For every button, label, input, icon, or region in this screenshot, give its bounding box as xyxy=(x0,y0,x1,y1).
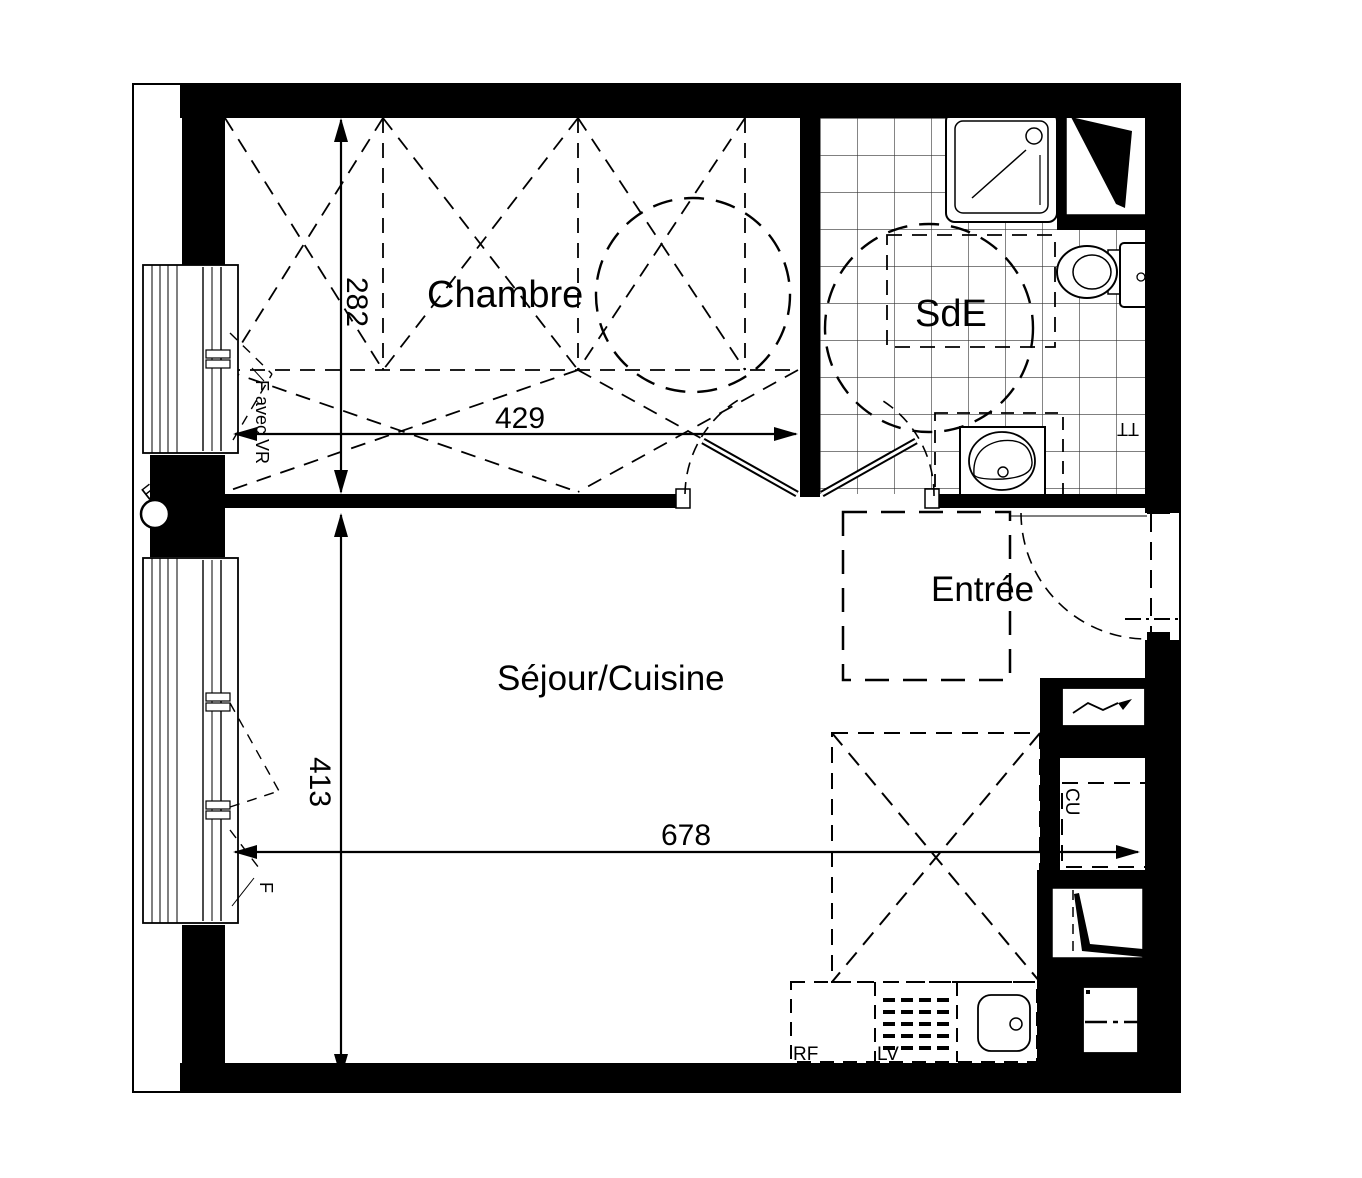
dim-413-label: 413 xyxy=(303,757,336,807)
kitchen-counter xyxy=(791,982,1037,1062)
towel-dryer-label: TT xyxy=(1117,419,1139,439)
chambre-turning-circle xyxy=(596,198,790,392)
wall-left-top xyxy=(182,85,225,265)
wall-bottom xyxy=(180,1063,1057,1092)
insulation-band-h xyxy=(1056,958,1148,977)
sde-label: SdE xyxy=(915,293,987,335)
wall-chambre-sejour xyxy=(225,494,690,508)
chambre-label: Chambre xyxy=(427,274,583,316)
wall-right-upper xyxy=(1145,85,1180,513)
dim-429-label: 429 xyxy=(495,402,545,435)
dim-678-label: 678 xyxy=(661,819,711,852)
dim-282-label: 282 xyxy=(340,277,373,327)
wall-chambre-sde xyxy=(800,112,820,497)
entry-door xyxy=(1010,504,1182,642)
kitchen-sink xyxy=(978,995,1030,1051)
wall-top xyxy=(180,85,1180,118)
washbasin xyxy=(960,427,1045,497)
floor-plan-canvas: Chambre SdE Entrée Séjour/Cuisine 282 42… xyxy=(0,0,1362,1178)
kitchen-column-label: CU xyxy=(1061,788,1082,815)
shower-tray xyxy=(946,112,1057,222)
rainwater-pipe-symbol xyxy=(141,500,169,528)
chambre-door xyxy=(685,399,797,494)
electrical-panel xyxy=(1062,688,1145,726)
sejour-window xyxy=(143,558,279,923)
window-handle xyxy=(206,693,230,701)
insulation-band-v xyxy=(1056,977,1075,1061)
window-handle xyxy=(206,350,230,358)
water-heater xyxy=(1083,987,1138,1053)
wall-sde-entree xyxy=(933,494,1147,508)
entree-label: Entrée xyxy=(931,570,1034,609)
sejour-cuisine-label: Séjour/Cuisine xyxy=(497,659,725,698)
dishwasher-label: LV xyxy=(877,1044,899,1065)
floor-plan-drawing: Chambre SdE Entrée Séjour/Cuisine 282 42… xyxy=(0,0,1362,1178)
fridge-label: RF xyxy=(793,1044,818,1065)
chambre-window-label: F avec VR xyxy=(252,380,272,464)
sejour-window-label: F xyxy=(256,882,276,893)
kitchen-dashed-zone xyxy=(832,733,1040,982)
